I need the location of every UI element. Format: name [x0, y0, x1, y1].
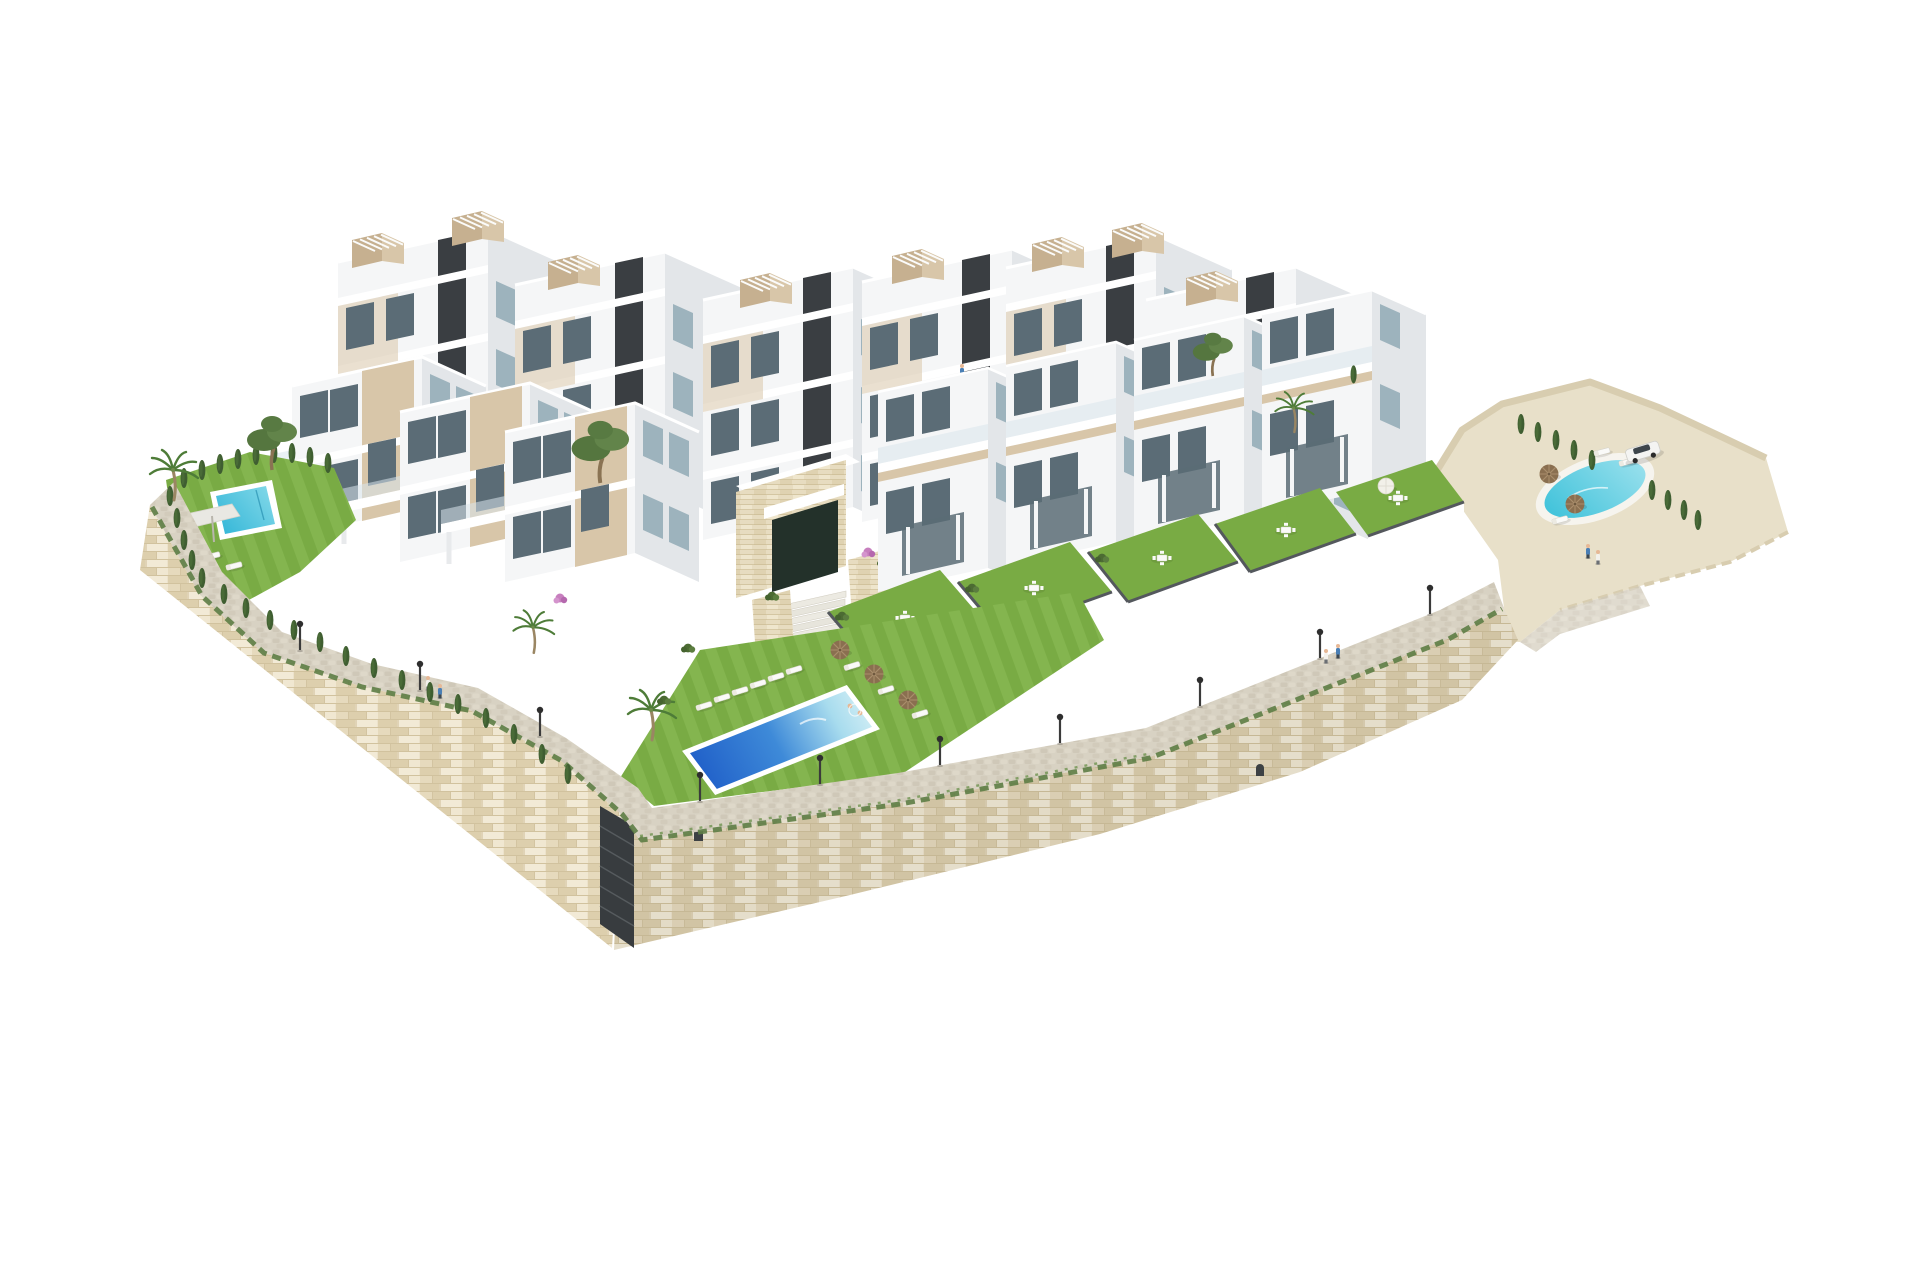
wall-stairwell — [600, 806, 634, 948]
render-canvas — [0, 0, 1920, 1280]
bougainvillea-and-shrubs — [554, 594, 696, 705]
wall-arch-door-2 — [1256, 764, 1264, 776]
architectural-render — [0, 0, 1920, 1280]
